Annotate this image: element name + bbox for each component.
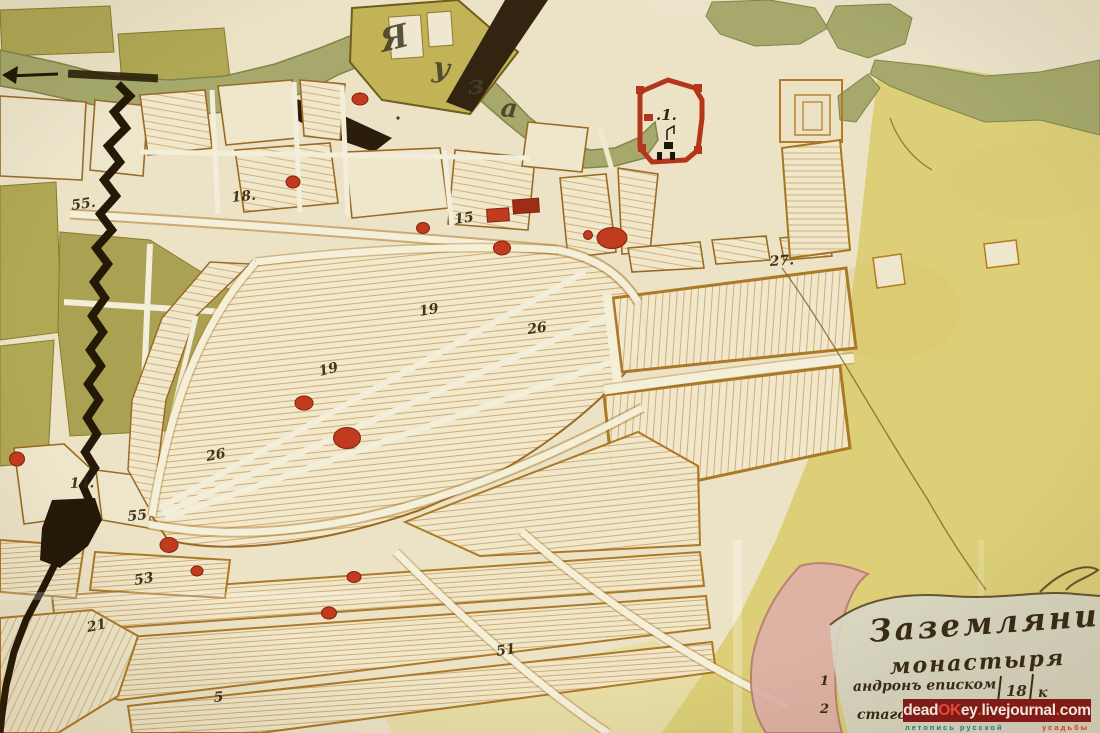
watermark-accent: OK [938,702,961,720]
tagline-left: летопись русской [905,723,1004,732]
tagline-right: усадьбы [1042,723,1089,732]
watermark-text: livejournal [982,702,1056,720]
vignette-overlay [0,0,1100,733]
watermark-tagline: летопись русской усадьбы [905,723,1089,732]
watermark-link[interactable]: deadOKey.livejournal.com [903,699,1091,722]
historic-map-canvas: Я у з а .1. 55.18.1519192627.2614.555321… [0,0,1100,733]
watermark-text: ey [961,702,978,720]
watermark-text: dead [903,702,938,720]
watermark-text: com [1060,702,1091,720]
map-drawing: Я у з а .1. 55.18.1519192627.2614.555321… [0,0,1100,733]
